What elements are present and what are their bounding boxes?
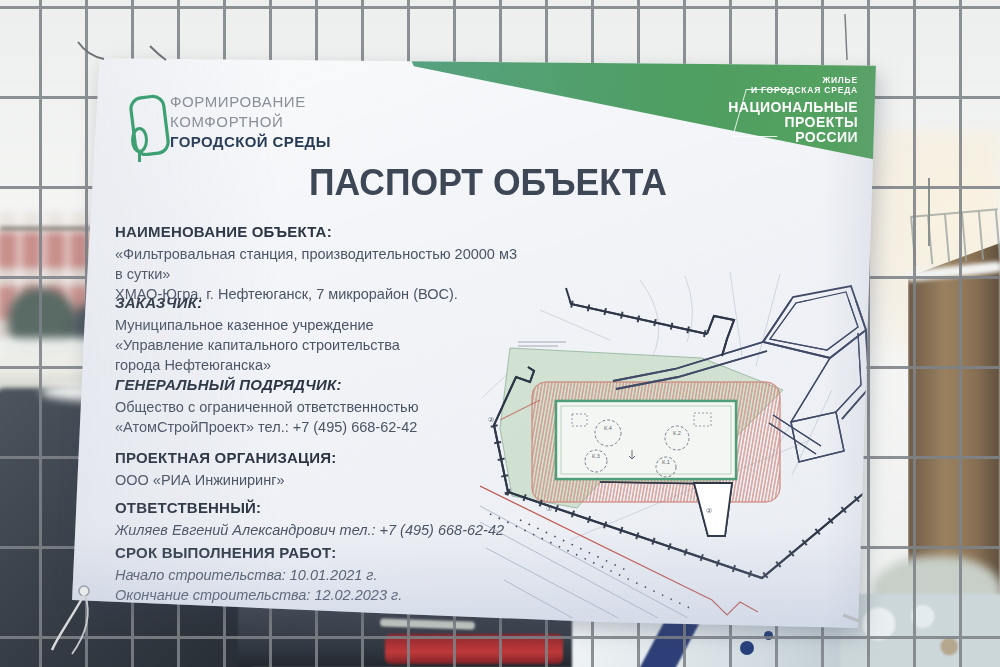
plan-note <box>518 342 566 346</box>
station-building <box>556 401 736 479</box>
section-customer: ЗАКАЗЧИК: Муниципальное казенное учрежде… <box>115 293 525 375</box>
section-line: ООО «РИА Инжиниринг» <box>115 470 525 490</box>
banner-title: ПАСПОРТ ОБЪЕКТА <box>229 162 747 204</box>
section-line: Общество с ограниченной ответственностью <box>115 397 525 417</box>
section-line: «Фильтровальная станция, производительно… <box>115 244 525 284</box>
program-logo-text: ФОРМИРОВАНИЕ КОМФОРТНОЙ ГОРОДСКОЙ СРЕДЫ <box>170 92 331 152</box>
badge-main-line-2: ПРОЕКТЫ <box>688 115 858 130</box>
dotted-utility-line <box>490 514 694 610</box>
section-line: «Управление капитального строительства <box>115 335 525 355</box>
circled-mark: ② <box>706 507 712 514</box>
section-line: Окончание строительства: 12.02.2023 г. <box>115 585 525 605</box>
section-line: Жиляев Евгений Александрович тел.: +7 (4… <box>115 520 525 540</box>
section-design-organization: ПРОЕКТНАЯ ОРГАНИЗАЦИЯ: ООО «РИА Инжинири… <box>115 448 525 490</box>
section-label: ОТВЕТСТВЕННЫЙ: <box>115 498 525 518</box>
section-line: «АтомСтройПроект» тел.: +7 (495) 668-62-… <box>115 417 525 437</box>
section-work-period: СРОК ВЫПОЛНЕНИЯ РАБОТ: Начало строительс… <box>115 543 525 605</box>
section-object-name: НАИМЕНОВАНИЕ ОБЪЕКТА: «Фильтровальная ст… <box>115 222 525 304</box>
logo-line-1: ФОРМИРОВАНИЕ <box>170 92 331 112</box>
section-line: Начало строительства: 10.01.2021 г. <box>115 565 525 585</box>
badge-main-line-1: НАЦИОНАЛЬНЫЕ <box>688 100 858 115</box>
national-projects-badge: ЖИЛЬЕ И ГОРОДСКАЯ СРЕДА НАЦИОНАЛЬНЫЕ ПРО… <box>688 75 858 145</box>
logo-line-2: КОМФОРТНОЙ <box>170 112 331 132</box>
object-passport-banner: ФОРМИРОВАНИЕ КОМФОРТНОЙ ГОРОДСКОЙ СРЕДЫ … <box>68 50 880 632</box>
section-label: ПРОЕКТНАЯ ОРГАНИЗАЦИЯ: <box>115 448 525 468</box>
section-label: СРОК ВЫПОЛНЕНИЯ РАБОТ: <box>115 543 525 563</box>
tank-label: К.4 <box>604 425 612 431</box>
badge-main-line-3: РОССИИ <box>688 130 858 145</box>
city-environment-logo-icon <box>126 90 170 168</box>
passport-banner-wrap: ФОРМИРОВАНИЕ КОМФОРТНОЙ ГОРОДСКОЙ СРЕДЫ … <box>0 0 1000 667</box>
tank-label: К.3 <box>592 453 600 459</box>
badge-sector-line-1: ЖИЛЬЕ <box>688 75 858 85</box>
badge-sector-line-2: И ГОРОДСКАЯ СРЕДА <box>688 85 858 95</box>
section-label: НАИМЕНОВАНИЕ ОБЪЕКТА: <box>115 222 525 242</box>
section-general-contractor: ГЕНЕРАЛЬНЫЙ ПОДРЯДЧИК: Общество с ограни… <box>115 375 525 437</box>
circled-mark: ② <box>488 416 494 423</box>
tank-label: К.2 <box>673 430 681 436</box>
site-plan-drawing: К.4 К.3 К.2 К.1 <box>480 270 870 618</box>
section-line: Муниципальное казенное учреждение <box>115 315 525 335</box>
section-line: города Нефтеюганска» <box>115 355 525 375</box>
section-responsible: ОТВЕТСТВЕННЫЙ: Жиляев Евгений Александро… <box>115 498 525 540</box>
construction-site-photo: ФОРМИРОВАНИЕ КОМФОРТНОЙ ГОРОДСКОЙ СРЕДЫ … <box>0 0 1000 667</box>
section-label: ГЕНЕРАЛЬНЫЙ ПОДРЯДЧИК: <box>115 375 525 395</box>
road-guidelines <box>480 506 688 618</box>
tank-label: К.1 <box>662 459 670 465</box>
logo-line-3: ГОРОДСКОЙ СРЕДЫ <box>170 132 331 152</box>
section-label: ЗАКАЗЧИК: <box>115 293 525 313</box>
circled-mark: ⑦ <box>546 505 552 512</box>
